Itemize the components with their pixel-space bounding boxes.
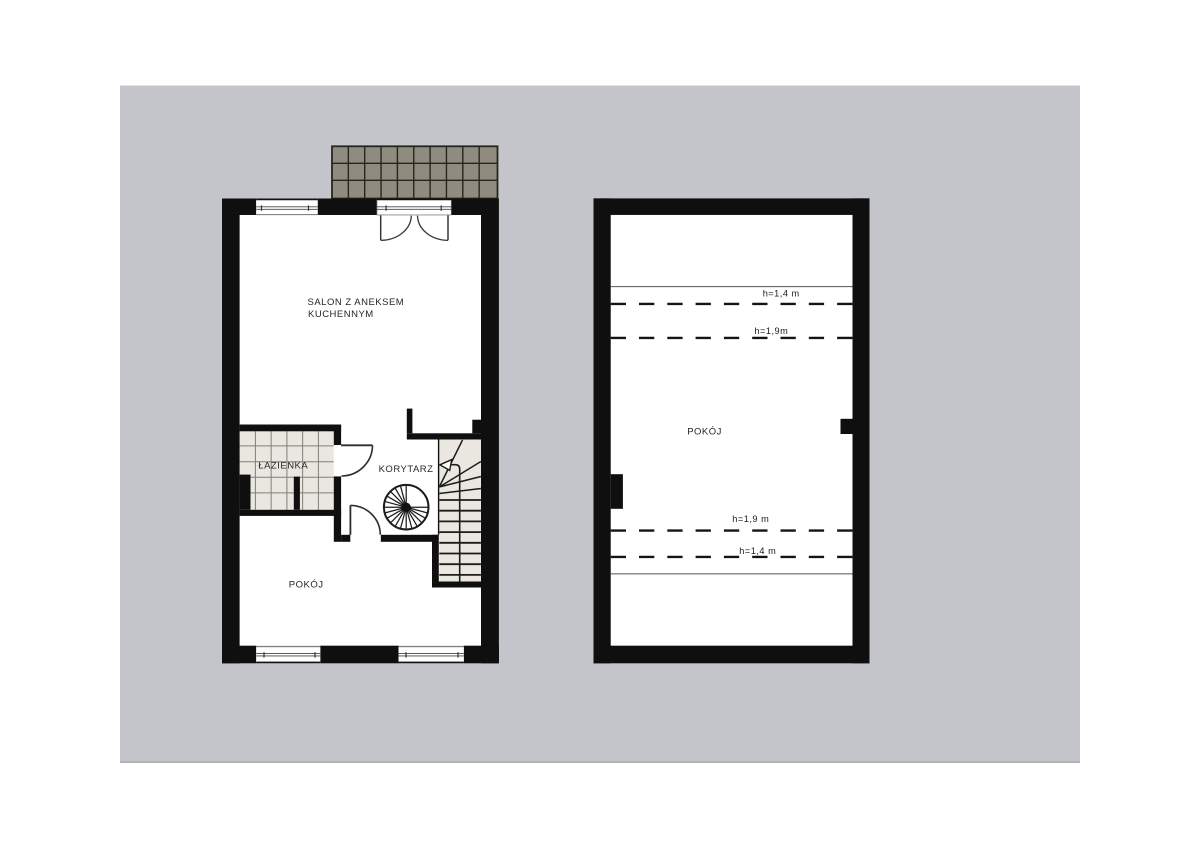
- svg-text:POKÓJ: POKÓJ: [289, 580, 324, 591]
- svg-text:h=1,9 m: h=1,9 m: [732, 514, 769, 524]
- svg-text:h=1,4 m: h=1,4 m: [739, 546, 776, 556]
- svg-text:ŁAZIENKA: ŁAZIENKA: [258, 460, 308, 471]
- svg-text:h=1,4 m: h=1,4 m: [763, 289, 800, 299]
- svg-text:h=1,9m: h=1,9m: [754, 326, 788, 336]
- svg-text:KORYTARZ: KORYTARZ: [379, 464, 434, 475]
- svg-text:SALON Z ANEKSEM: SALON Z ANEKSEM: [308, 297, 405, 308]
- svg-text:POKÓJ: POKÓJ: [687, 426, 722, 437]
- svg-text:KUCHENNYM: KUCHENNYM: [308, 309, 374, 320]
